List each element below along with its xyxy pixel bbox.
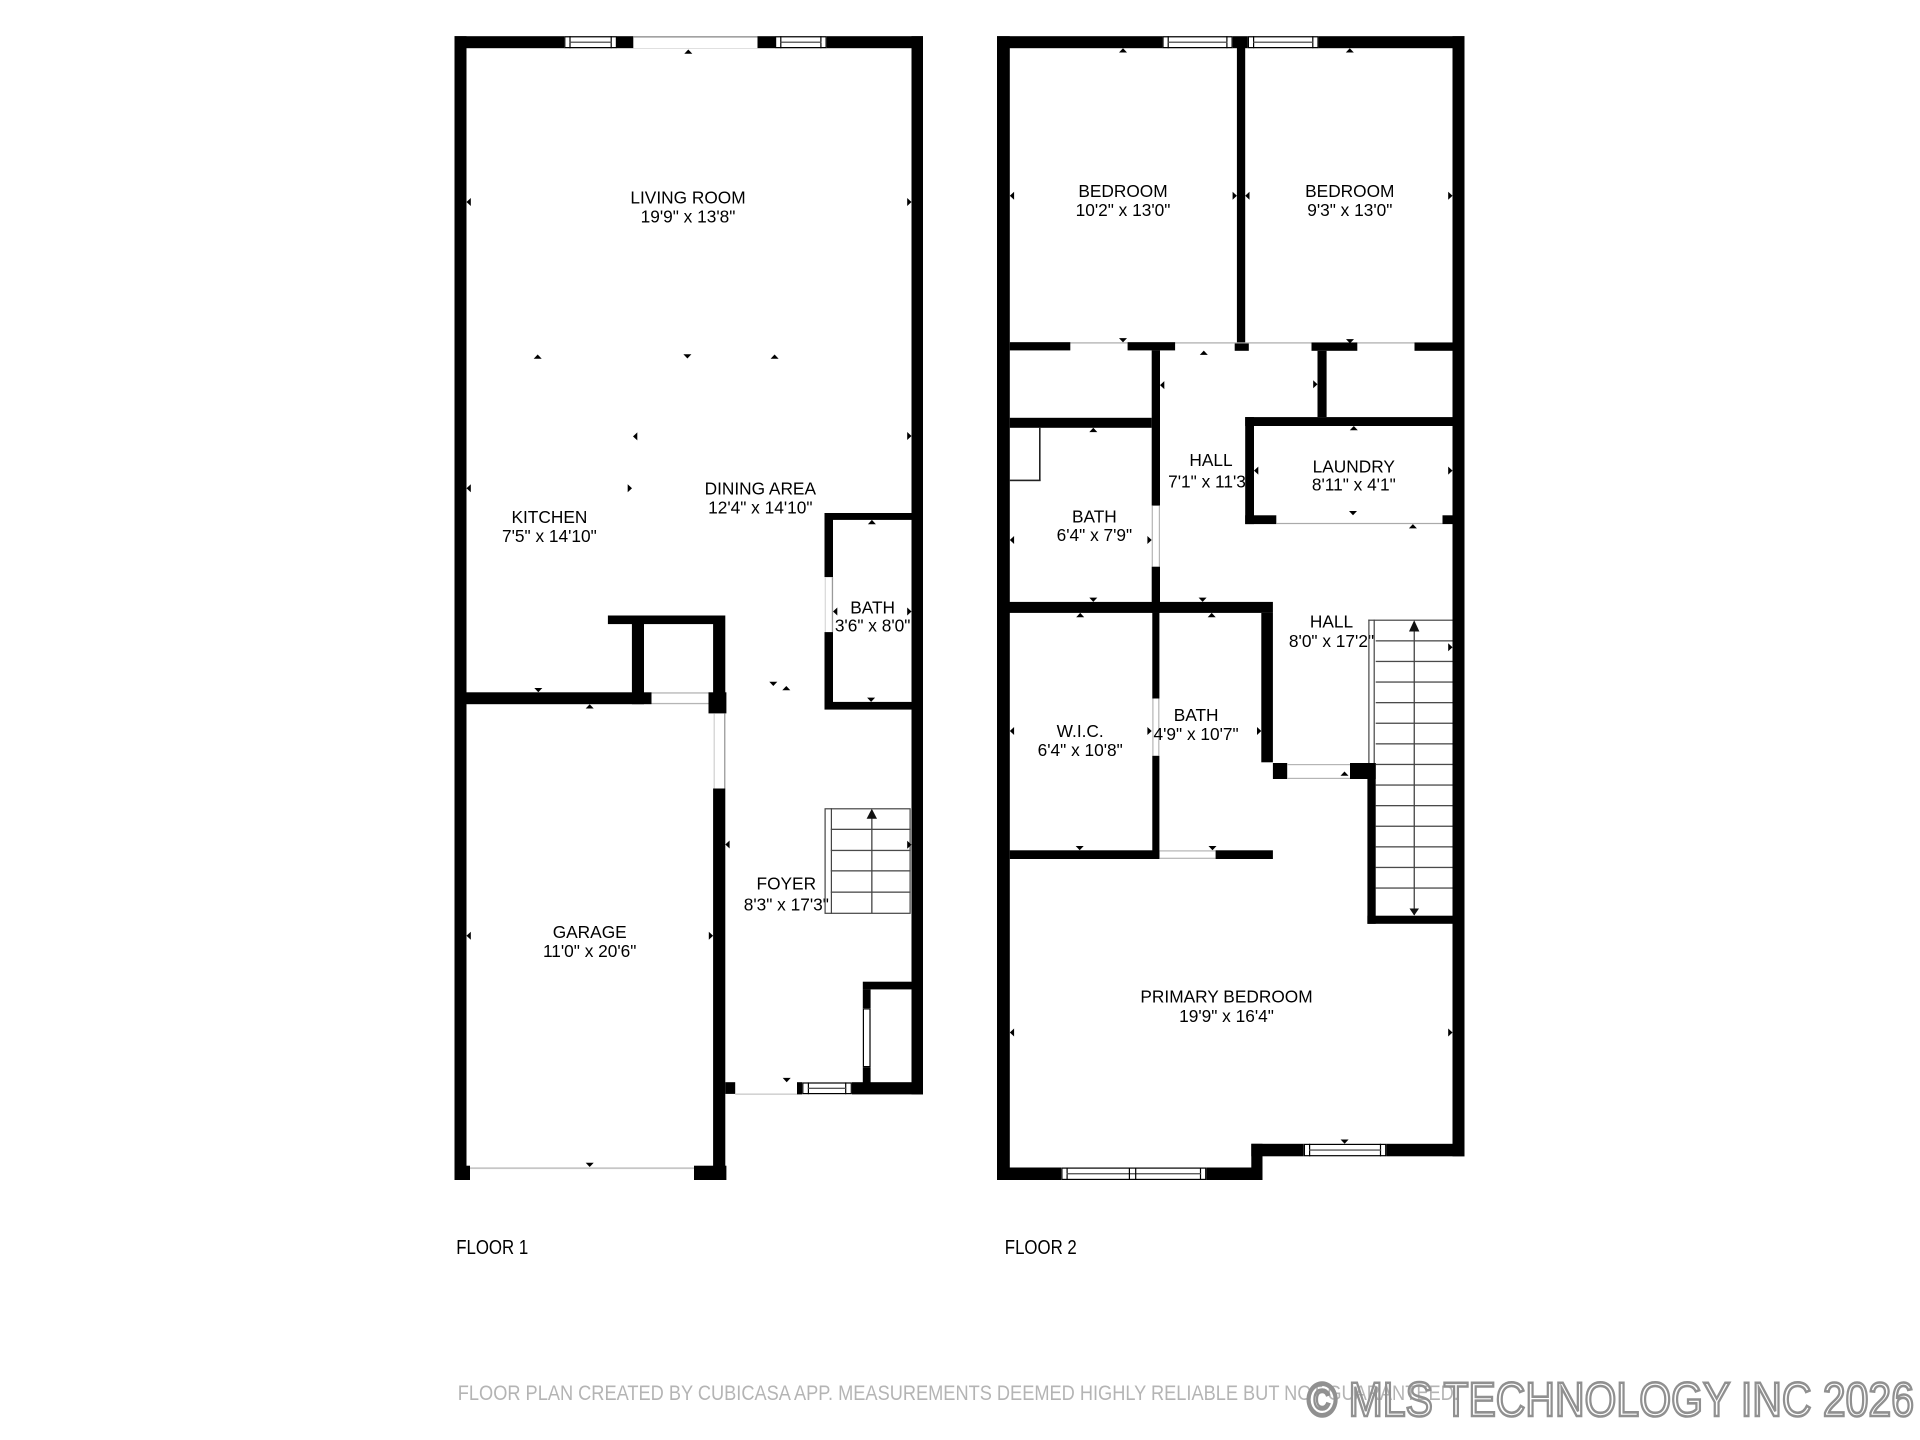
- svg-text:BATH: BATH: [1072, 507, 1117, 527]
- svg-text:LIVING ROOM: LIVING ROOM: [630, 187, 745, 207]
- svg-text:12'4" x 14'10": 12'4" x 14'10": [708, 498, 812, 518]
- svg-text:6'4" x 10'8": 6'4" x 10'8": [1038, 740, 1123, 760]
- svg-text:FLOOR 2: FLOOR 2: [1005, 1237, 1077, 1259]
- svg-text:3'6" x 8'0": 3'6" x 8'0": [835, 615, 911, 635]
- svg-text:8'0" x 17'2": 8'0" x 17'2": [1289, 631, 1374, 651]
- svg-text:8'11" x 4'1": 8'11" x 4'1": [1312, 475, 1396, 495]
- svg-text:11'0" x 20'6": 11'0" x 20'6": [543, 941, 637, 961]
- svg-text:KITCHEN: KITCHEN: [511, 507, 587, 527]
- svg-text:10'2" x 13'0": 10'2" x 13'0": [1076, 200, 1171, 220]
- svg-text:BEDROOM: BEDROOM: [1078, 181, 1167, 201]
- svg-text:FLOOR 1: FLOOR 1: [456, 1237, 528, 1259]
- svg-text:LAUNDRY: LAUNDRY: [1313, 457, 1396, 477]
- svg-text:19'9" x 16'4": 19'9" x 16'4": [1179, 1006, 1274, 1026]
- svg-text:DINING AREA: DINING AREA: [705, 479, 817, 499]
- svg-text:HALL: HALL: [1189, 450, 1233, 470]
- svg-text:GARAGE: GARAGE: [553, 922, 627, 942]
- svg-text:© MLS TECHNOLOGY INC 2026: © MLS TECHNOLOGY INC 2026: [1307, 1374, 1914, 1427]
- svg-text:7'5" x 14'10": 7'5" x 14'10": [502, 526, 597, 546]
- svg-text:FOYER: FOYER: [757, 874, 817, 894]
- svg-text:6'4" x 7'9": 6'4" x 7'9": [1057, 525, 1133, 545]
- svg-text:W.I.C.: W.I.C.: [1057, 721, 1104, 741]
- svg-text:4'9" x 10'7": 4'9" x 10'7": [1154, 724, 1239, 744]
- svg-text:PRIMARY BEDROOM: PRIMARY BEDROOM: [1140, 987, 1312, 1007]
- svg-text:BATH: BATH: [1174, 705, 1219, 725]
- svg-text:9'3" x 13'0": 9'3" x 13'0": [1307, 200, 1392, 220]
- svg-text:19'9" x 13'8": 19'9" x 13'8": [641, 207, 736, 227]
- svg-text:BEDROOM: BEDROOM: [1305, 181, 1394, 201]
- svg-text:7'1" x 11'3: 7'1" x 11'3: [1168, 471, 1246, 491]
- svg-text:8'3" x 17'3": 8'3" x 17'3": [744, 895, 829, 915]
- svg-text:HALL: HALL: [1310, 612, 1354, 632]
